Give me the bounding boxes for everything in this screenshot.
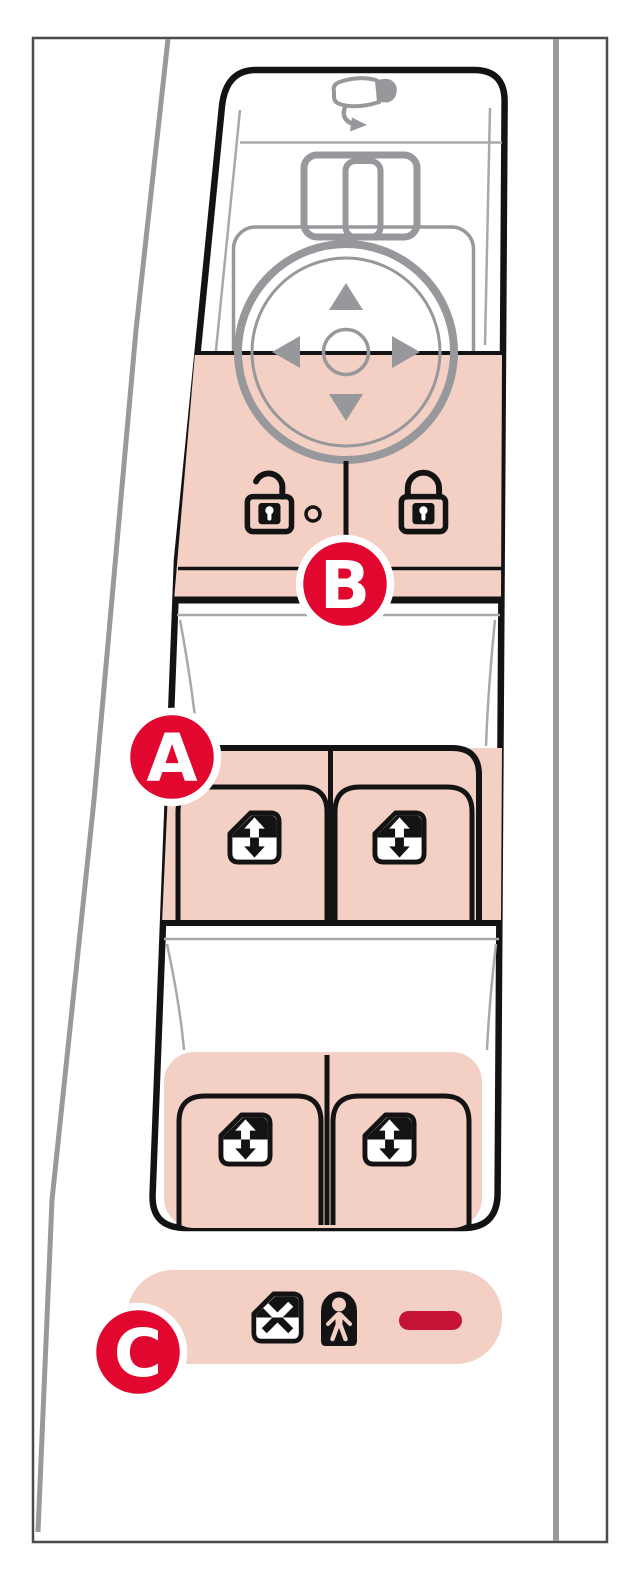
callout-c-label: C — [114, 1315, 162, 1392]
callout-b-label: B — [320, 547, 370, 624]
callout-a: A — [127, 712, 218, 803]
callout-b: B — [300, 539, 391, 630]
door-control-panel-figure: B A C — [0, 0, 638, 1571]
disable-indicator-light — [399, 1311, 462, 1330]
child-lock-icon — [321, 1292, 357, 1347]
lock-icon-keyhole-stem — [421, 512, 425, 520]
child-head-cutout — [332, 1298, 346, 1312]
illustration-canvas: B A C — [0, 0, 638, 1571]
rear-window-switch-panel — [164, 1052, 482, 1228]
callout-c: C — [93, 1307, 184, 1398]
unlock-icon-keyhole-stem — [267, 512, 271, 520]
callout-a-label: A — [146, 720, 197, 797]
